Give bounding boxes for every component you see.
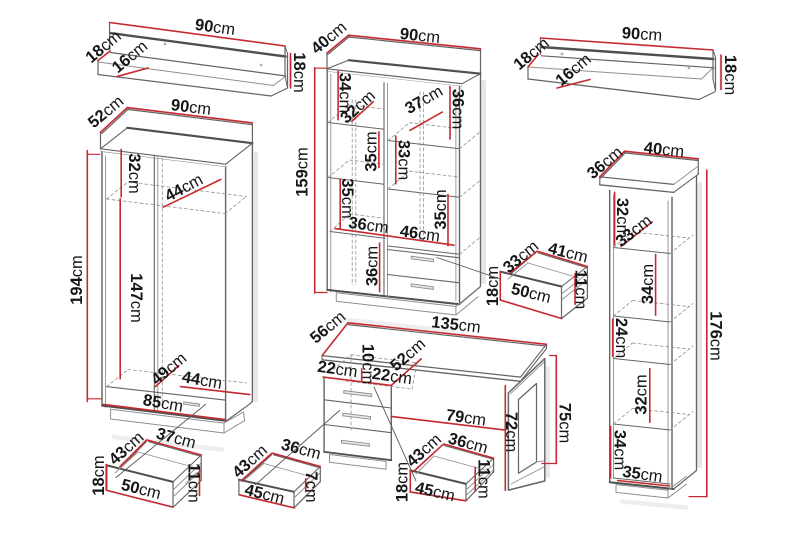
svg-text:11cm: 11cm: [572, 270, 590, 309]
svg-text:35cm: 35cm: [338, 178, 356, 218]
svg-text:147cm: 147cm: [127, 273, 145, 323]
svg-text:159cm: 159cm: [294, 147, 312, 197]
svg-text:18cm: 18cm: [90, 455, 108, 495]
svg-text:11cm: 11cm: [475, 459, 493, 498]
svg-text:33cm: 33cm: [395, 140, 413, 180]
svg-text:34cm: 34cm: [639, 264, 657, 304]
svg-text:18cm: 18cm: [721, 55, 739, 95]
svg-text:35cm: 35cm: [363, 131, 381, 171]
svg-text:32cm: 32cm: [125, 153, 143, 193]
svg-text:176cm: 176cm: [707, 311, 725, 361]
svg-text:72cm: 72cm: [502, 412, 520, 452]
svg-text:90cm: 90cm: [621, 24, 663, 45]
svg-text:10cm: 10cm: [359, 344, 377, 384]
svg-text:194cm: 194cm: [68, 255, 86, 305]
svg-text:18cm: 18cm: [484, 266, 502, 306]
svg-text:35cm: 35cm: [432, 189, 450, 229]
svg-text:36cm: 36cm: [449, 89, 467, 129]
svg-text:32cm: 32cm: [633, 374, 651, 414]
svg-text:24cm: 24cm: [612, 318, 630, 358]
svg-text:36cm: 36cm: [364, 246, 382, 286]
svg-text:75cm: 75cm: [556, 403, 574, 443]
svg-text:18cm: 18cm: [290, 52, 308, 92]
svg-text:11cm: 11cm: [185, 463, 203, 502]
svg-text:7cm: 7cm: [302, 471, 320, 502]
svg-text:18cm: 18cm: [394, 462, 412, 502]
